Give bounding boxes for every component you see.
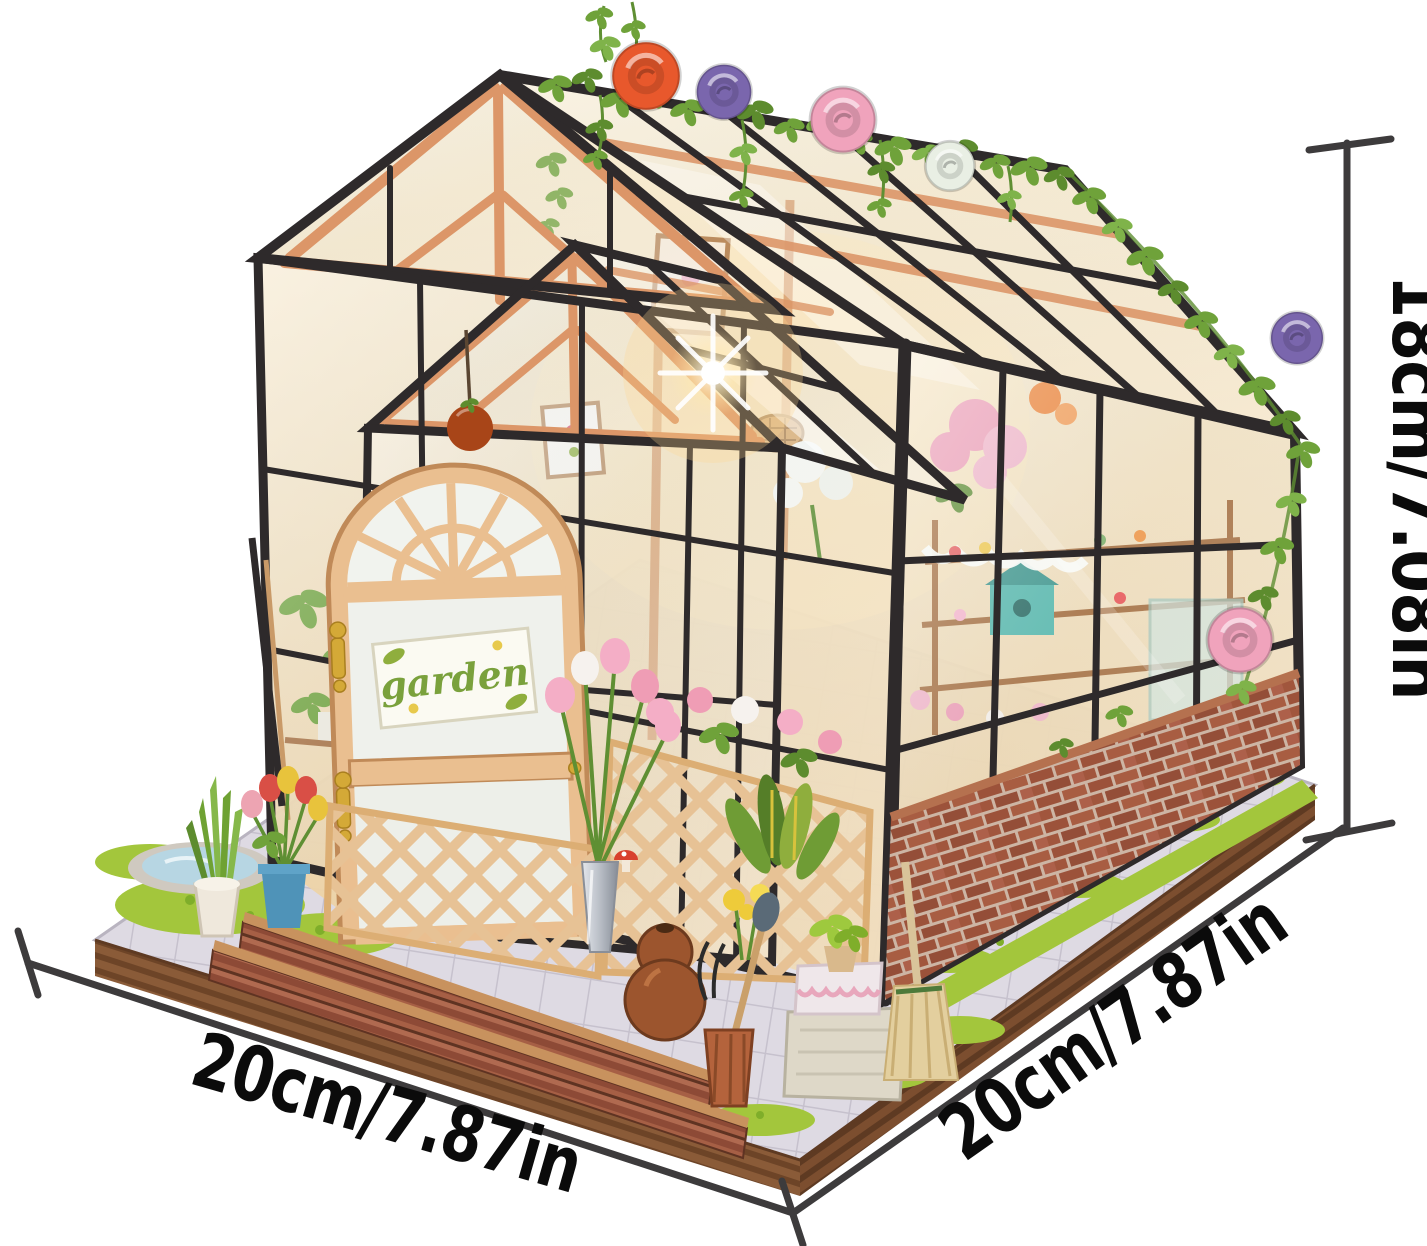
rose-purple-right-icon (1271, 312, 1323, 364)
interior-light (623, 283, 803, 463)
product-photo-svg: garden (0, 0, 1427, 1246)
rose-white-icon (925, 141, 974, 190)
product-image: garden (0, 0, 1427, 1246)
rose-pink-right-icon (1208, 608, 1273, 673)
garden-sign: garden (373, 628, 537, 728)
rose-orange-icon (612, 42, 680, 110)
rose-pink-icon (811, 88, 876, 153)
height-label: 18cm/7.08in (1376, 275, 1427, 700)
rose-purple-icon (697, 65, 752, 120)
